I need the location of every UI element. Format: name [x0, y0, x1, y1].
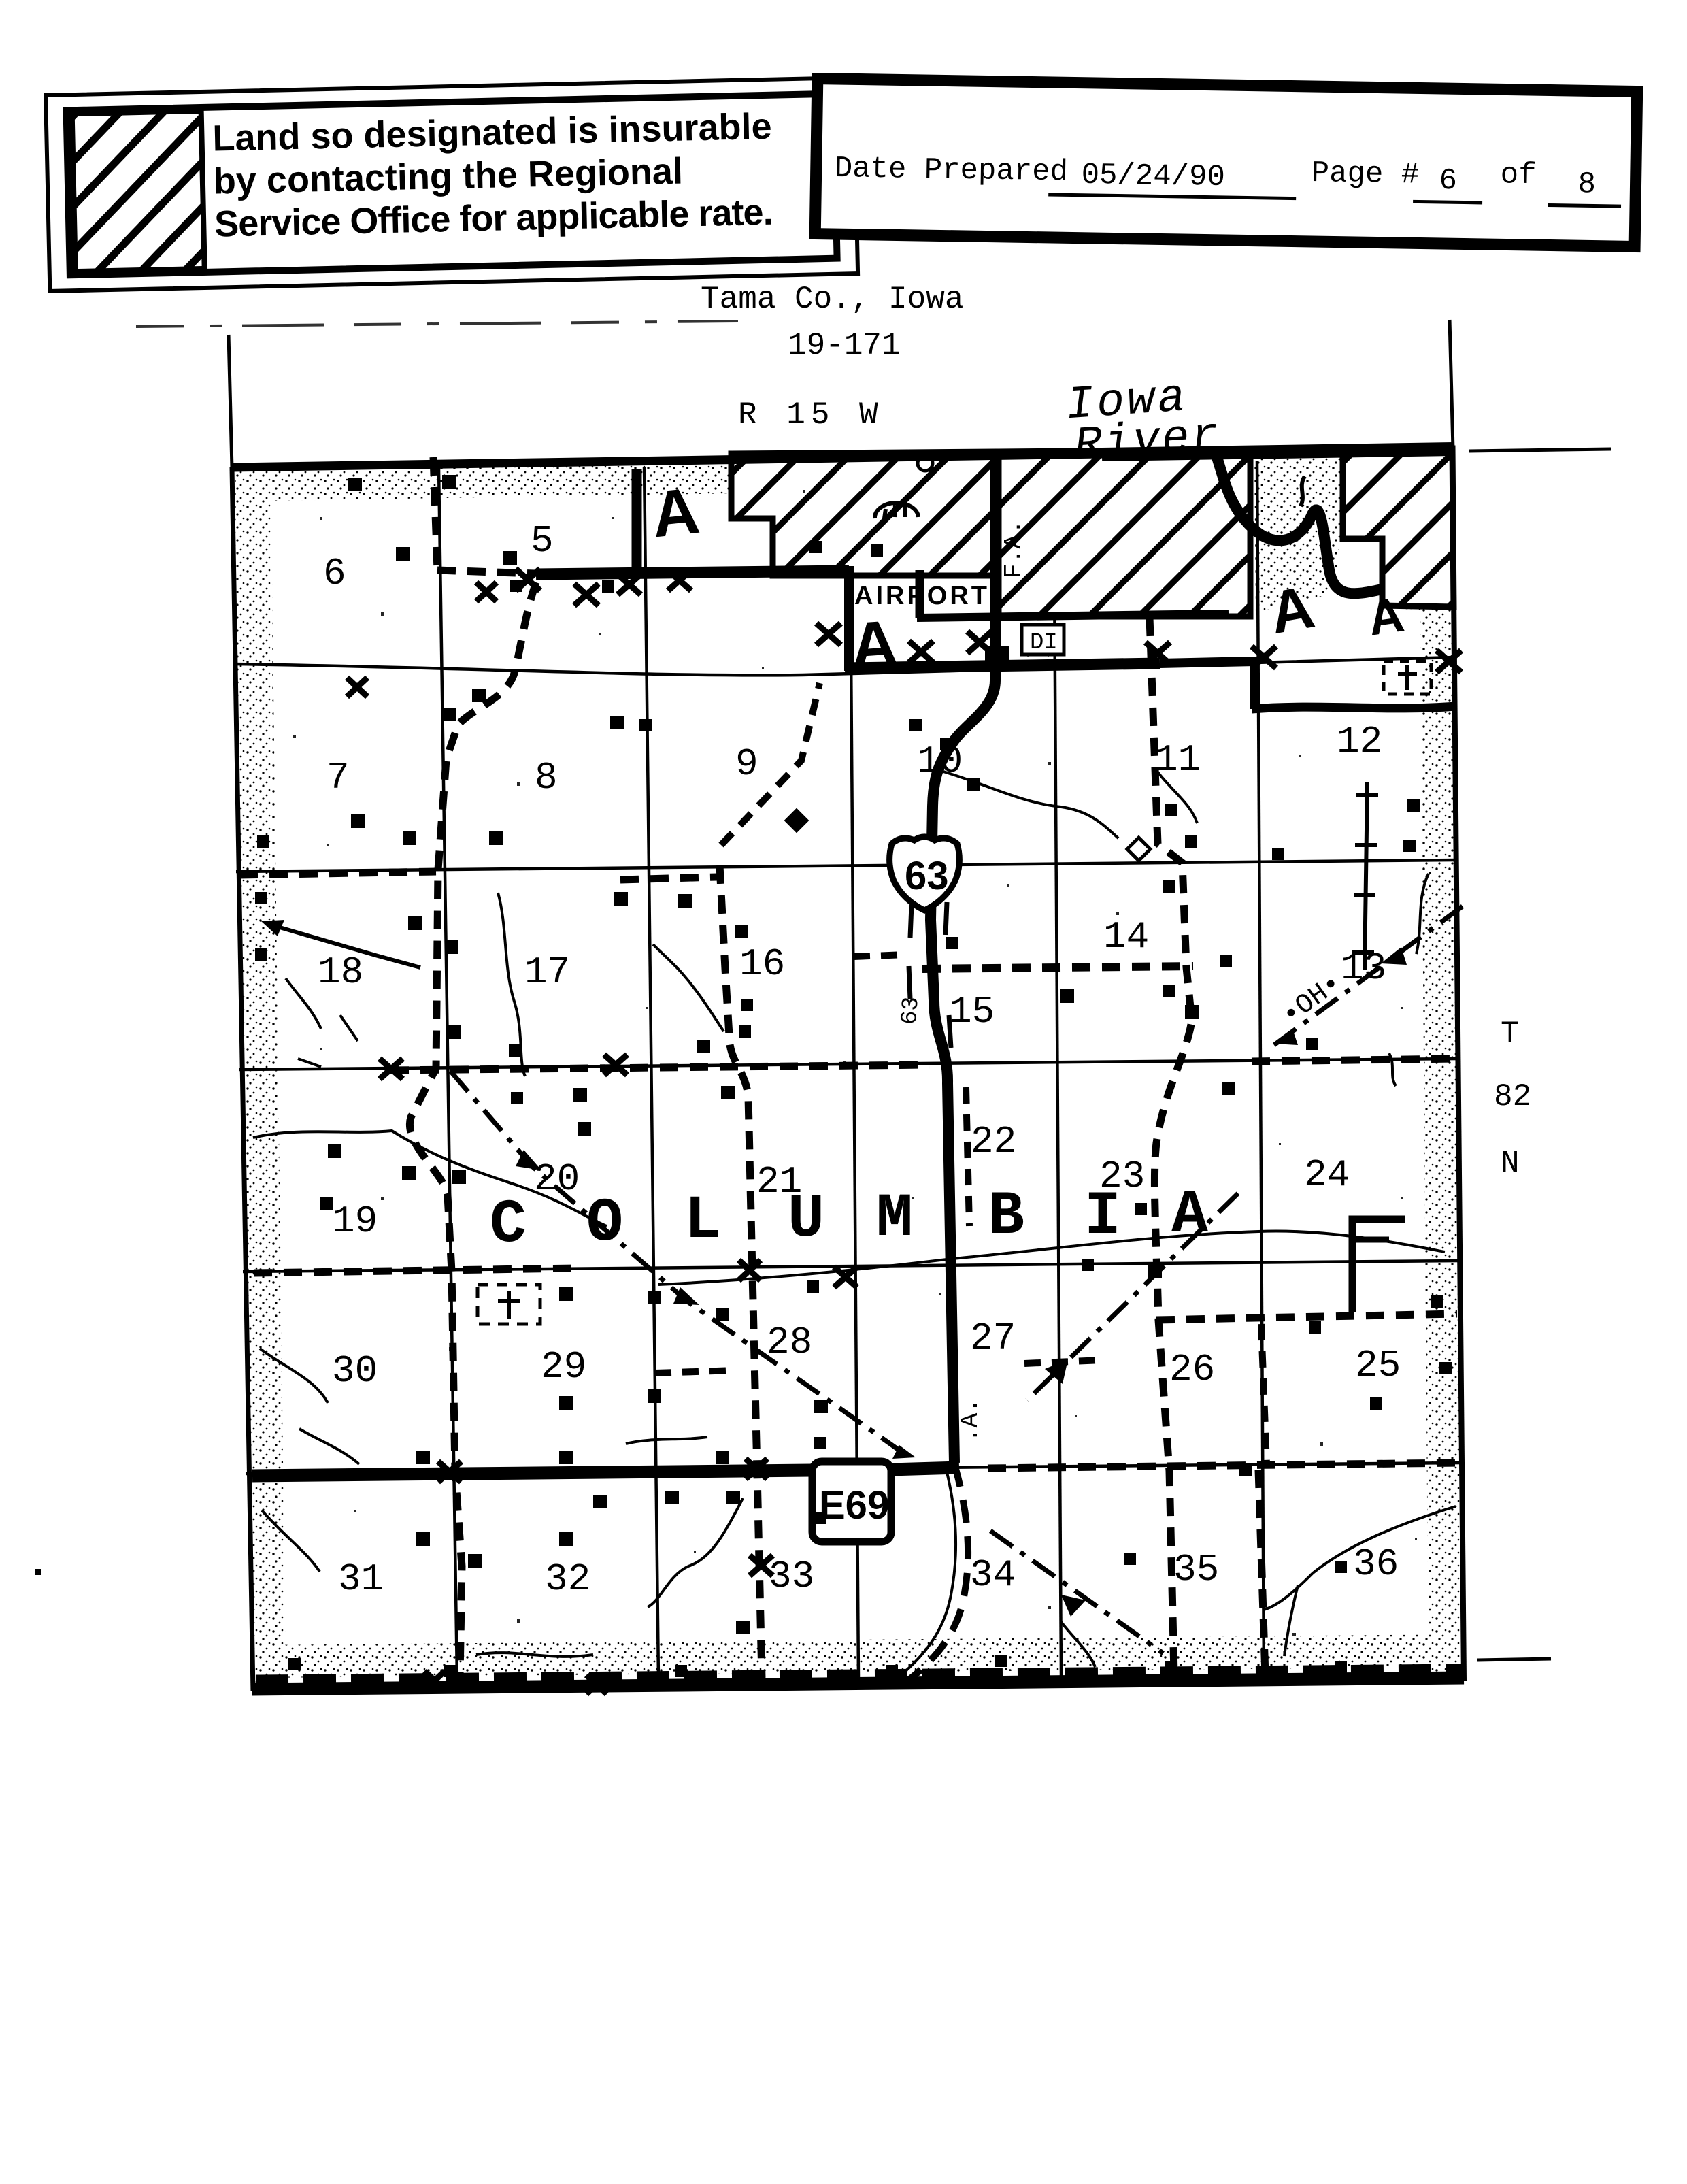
svg-text:30: 30: [332, 1349, 378, 1393]
svg-text:DI: DI: [1030, 630, 1058, 656]
svg-text:M: M: [876, 1185, 913, 1254]
svg-text:25: 25: [1355, 1344, 1401, 1387]
svg-text:34: 34: [970, 1553, 1016, 1597]
svg-text:21: 21: [756, 1160, 802, 1204]
svg-text:24: 24: [1304, 1153, 1350, 1197]
svg-text:Page #: Page #: [1311, 156, 1419, 192]
svg-text:AIRPORT: AIRPORT: [854, 582, 990, 610]
svg-text:12: 12: [1337, 720, 1382, 763]
svg-text:O: O: [586, 1189, 623, 1259]
svg-text:36: 36: [1353, 1542, 1399, 1586]
svg-text:15: 15: [949, 990, 995, 1033]
svg-text:9: 9: [735, 742, 758, 786]
svg-text:27: 27: [970, 1317, 1016, 1360]
svg-text:16: 16: [739, 942, 785, 986]
svg-text:05/24/90: 05/24/90: [1081, 159, 1225, 195]
svg-text:E69: E69: [819, 1483, 889, 1527]
svg-text:26: 26: [1169, 1348, 1215, 1391]
svg-text:14: 14: [1103, 915, 1149, 959]
svg-text:19: 19: [332, 1199, 378, 1243]
svg-text:11: 11: [1155, 738, 1201, 782]
svg-text:31: 31: [338, 1557, 384, 1601]
svg-text:32: 32: [545, 1557, 590, 1601]
svg-text:L: L: [684, 1187, 721, 1256]
svg-text:A: A: [648, 474, 703, 552]
svg-text:10: 10: [917, 740, 963, 783]
svg-text:F.A.: F.A.: [1000, 520, 1028, 578]
svg-text:R 15 W: R 15 W: [738, 397, 884, 433]
svg-text:63: 63: [905, 854, 949, 898]
svg-text:T: T: [1501, 1016, 1520, 1052]
svg-text:20: 20: [534, 1157, 580, 1201]
svg-text:63: 63: [897, 996, 925, 1025]
svg-text:B: B: [988, 1182, 1024, 1252]
svg-text:of: of: [1500, 158, 1537, 193]
svg-text:Tama Co., Iowa: Tama Co., Iowa: [701, 282, 963, 317]
svg-text:19-171: 19-171: [788, 328, 901, 363]
svg-text:.A.: .A.: [956, 1398, 984, 1442]
svg-text:13: 13: [1341, 946, 1386, 990]
svg-text:29: 29: [541, 1345, 586, 1389]
svg-text:A: A: [848, 607, 901, 683]
svg-text:8: 8: [1577, 167, 1596, 201]
svg-text:22: 22: [971, 1120, 1016, 1163]
svg-text:28: 28: [767, 1321, 812, 1364]
svg-text:17: 17: [524, 950, 570, 994]
svg-text:35: 35: [1173, 1548, 1219, 1591]
svg-text:5: 5: [531, 519, 554, 563]
svg-text:C: C: [490, 1191, 527, 1260]
svg-text:A: A: [1365, 587, 1407, 646]
svg-text:8: 8: [535, 756, 558, 799]
svg-text:82: 82: [1494, 1079, 1531, 1114]
svg-text:A: A: [1171, 1181, 1209, 1251]
svg-text:6: 6: [323, 552, 346, 595]
svg-text:Date Prepared: Date Prepared: [834, 152, 1068, 189]
svg-text:33: 33: [769, 1555, 814, 1598]
svg-text:N: N: [1501, 1146, 1520, 1181]
svg-text:7: 7: [327, 756, 350, 799]
svg-text:18: 18: [318, 950, 363, 994]
svg-text:6: 6: [1439, 164, 1457, 198]
svg-text:23: 23: [1099, 1155, 1145, 1198]
